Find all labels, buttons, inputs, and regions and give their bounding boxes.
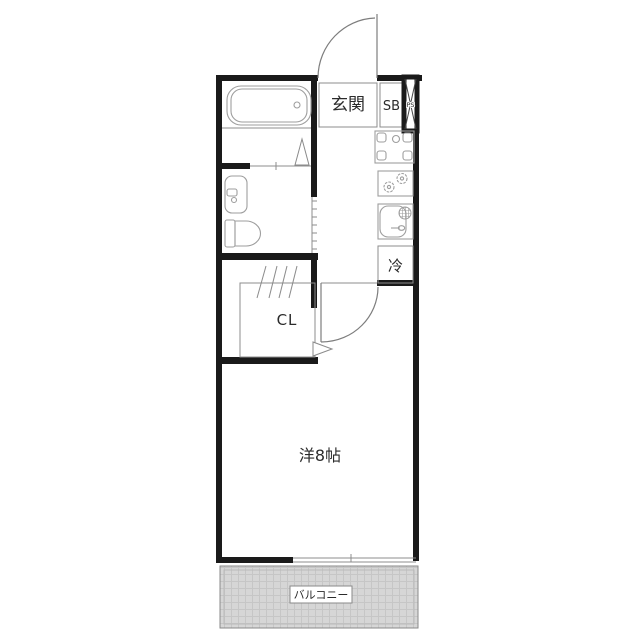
entrance: 玄関 SB PS bbox=[318, 14, 417, 131]
burner bbox=[384, 182, 394, 192]
washing-machine-pan bbox=[375, 131, 414, 163]
closet-label: CL bbox=[277, 311, 298, 329]
pan-drain bbox=[393, 136, 400, 143]
sink-drainer bbox=[399, 207, 411, 219]
shoe-box-label: SB bbox=[383, 99, 400, 114]
closet: CL bbox=[240, 266, 332, 357]
washroom bbox=[225, 176, 317, 253]
burner bbox=[397, 174, 407, 184]
washbasin-faucet bbox=[227, 189, 237, 196]
toilet-tank bbox=[225, 220, 235, 247]
closet-right-wall bbox=[311, 260, 317, 308]
balcony-window bbox=[293, 554, 416, 562]
bathroom bbox=[222, 86, 311, 170]
genkan-label: 玄関 bbox=[331, 95, 365, 115]
pan-pad bbox=[403, 151, 412, 160]
floor-plan-canvas: 玄関 SB PS bbox=[0, 0, 640, 640]
left-wall bbox=[216, 75, 222, 563]
pipe-space-label: PS bbox=[406, 101, 414, 109]
burner-center bbox=[400, 177, 403, 180]
balcony: バルコニー bbox=[220, 566, 418, 628]
pan-pad bbox=[403, 133, 412, 142]
entrance-door-arc bbox=[318, 18, 375, 78]
hanger-mark bbox=[257, 266, 266, 298]
kitchen: 冷 bbox=[375, 131, 414, 283]
washbasin-faucet-knob bbox=[232, 198, 237, 203]
bathtub-outer bbox=[227, 86, 311, 125]
fridge-label: 冷 bbox=[388, 257, 403, 275]
bath-door-triangle bbox=[295, 139, 309, 165]
washroom-bottom-wall bbox=[216, 253, 318, 260]
bathtub-drain bbox=[294, 102, 300, 108]
walls bbox=[216, 75, 422, 563]
bath-divider-wall-stub bbox=[216, 163, 250, 169]
burner-center bbox=[387, 185, 390, 188]
washroom-sliding-door bbox=[312, 197, 317, 253]
stove-outline bbox=[378, 171, 413, 196]
top-wall-left bbox=[216, 75, 318, 81]
room-bottom-wall bbox=[216, 557, 293, 563]
balcony-label: バルコニー bbox=[294, 589, 349, 602]
washbasin bbox=[225, 176, 247, 213]
main-room: 洋8帖 bbox=[293, 283, 416, 562]
hanger-mark bbox=[279, 266, 287, 298]
closet-bottom-wall bbox=[216, 357, 318, 364]
floor-plan: 玄関 SB PS bbox=[0, 0, 640, 640]
closet-door-triangle bbox=[313, 342, 332, 356]
main-room-label: 洋8帖 bbox=[299, 446, 341, 465]
hanger-mark bbox=[269, 266, 277, 298]
kitchen-sink bbox=[378, 204, 413, 239]
bathroom-right-wall bbox=[311, 81, 317, 197]
hanger-mark bbox=[289, 266, 297, 298]
room-door-arc bbox=[321, 287, 378, 342]
toilet-bowl bbox=[235, 221, 261, 246]
stove bbox=[378, 171, 413, 196]
bathtub-inner bbox=[231, 89, 307, 122]
pan-pad bbox=[377, 151, 386, 160]
closet-hanger-pipe-marks bbox=[257, 266, 297, 298]
pan-pad bbox=[377, 133, 386, 142]
